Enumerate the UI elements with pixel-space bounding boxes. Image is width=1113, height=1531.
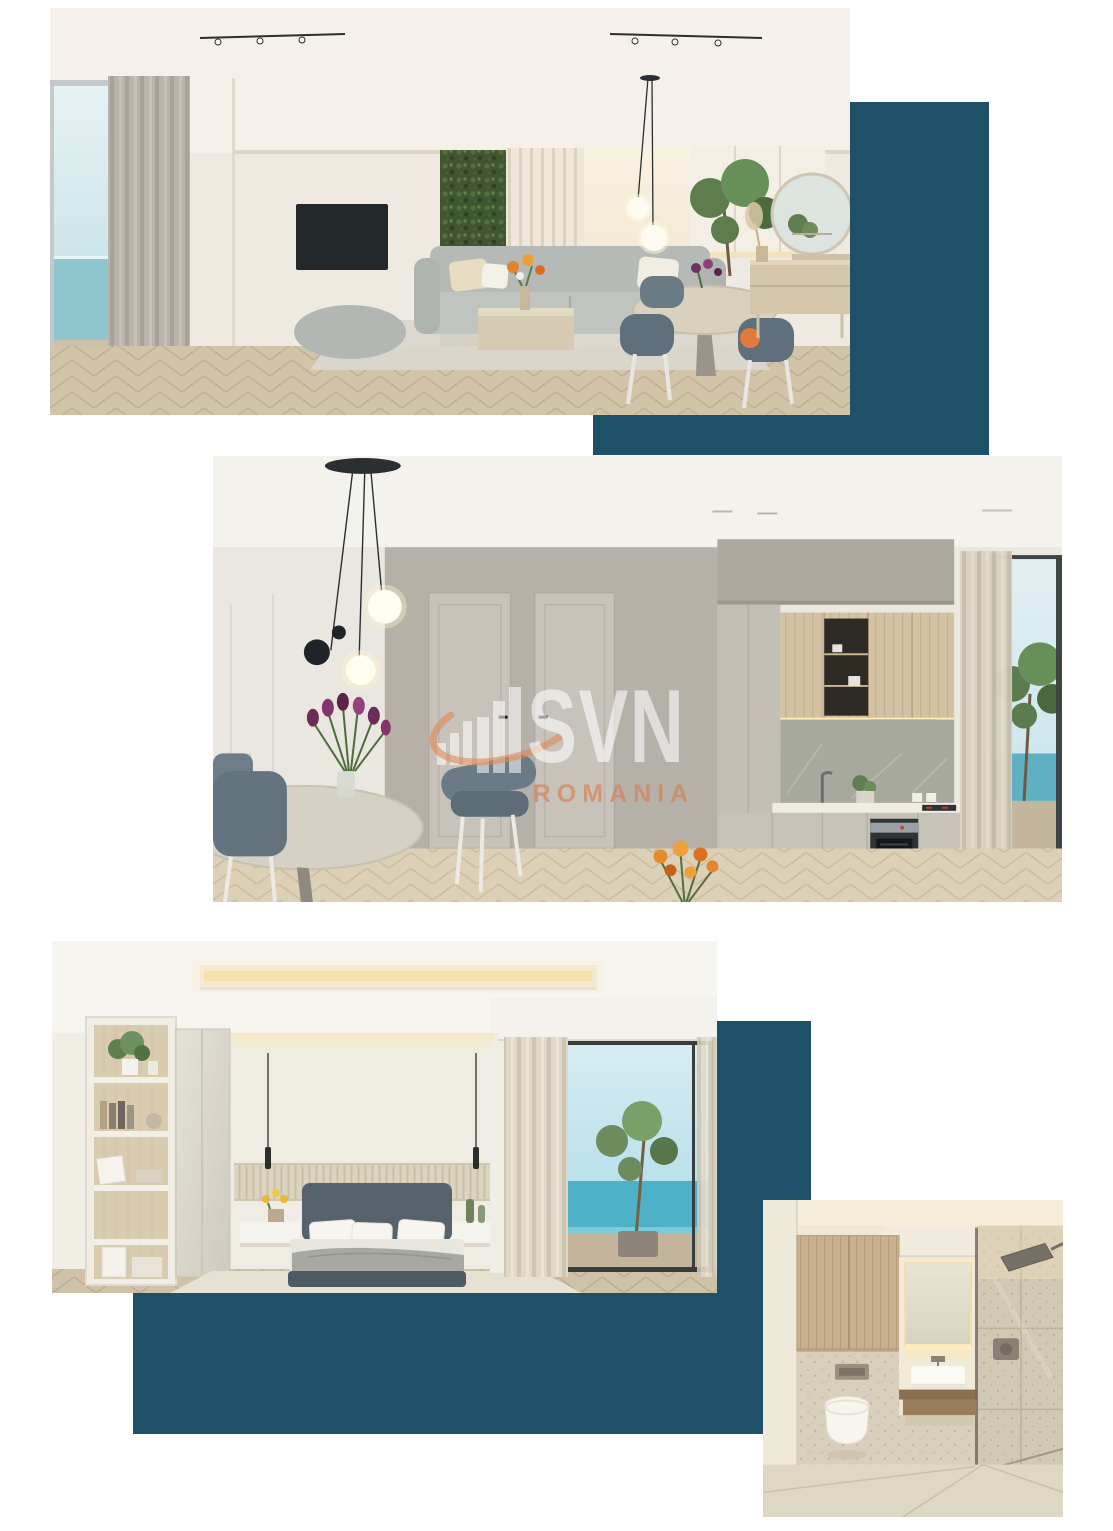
- kitchen-illustration: [213, 456, 1062, 902]
- kitchen-photo: SVN ROMANIA: [213, 456, 1062, 902]
- brochure-page: SVN ROMANIA: [0, 0, 1113, 1531]
- bedroom-illustration: [52, 941, 717, 1293]
- bathroom-illustration: [763, 1200, 1063, 1517]
- living-room-illustration: [50, 8, 850, 415]
- bedroom-photo: [52, 941, 717, 1293]
- bathroom-photo: [763, 1200, 1063, 1517]
- living-room-photo: [50, 8, 850, 415]
